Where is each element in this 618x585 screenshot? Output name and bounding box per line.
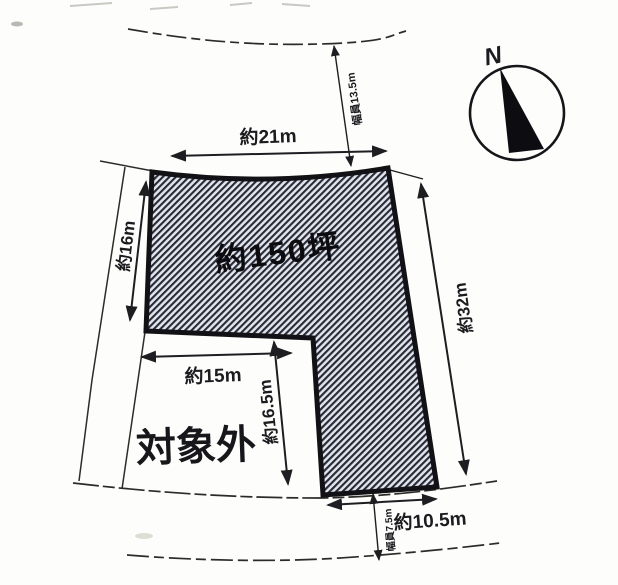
scanned-plot-diagram: 約150坪 対象外 約21m 約16m 約32m 約15m 約16.5m 約10… [0,0,618,585]
compass: N [470,41,564,160]
dim-top-width: 約21m [172,124,386,156]
diagram-canvas: 約150坪 対象外 約21m 約16m 約32m 約15m 約16.5m 約10… [0,0,618,585]
dim-left-side: 約16m [113,182,146,320]
dim-inner-width-line [142,353,291,357]
scan-smudge [70,3,112,6]
dim-inner-height-label: 約16.5m [255,379,282,446]
compass-north-label: N [482,41,505,71]
scan-smudge [282,4,310,6]
bottom-road-edge-lower [127,543,500,560]
scan-speck [135,533,153,539]
dim-top-road-width: 幅員13.5m [334,46,365,166]
right-corner-extension-line [390,170,423,179]
dim-bottom-width-line [328,499,436,505]
top-road-edge-lower [100,161,153,171]
dim-top-road-width-label: 幅員13.5m [343,71,364,126]
scan-smudge [230,3,252,5]
dim-bottom-width-label: 約10.5m [393,506,467,534]
dim-bottom-road-width: 幅員7.5m [373,494,398,560]
top-road-edge-upper [128,29,406,44]
dim-inner-height: 約16.5m [255,342,288,484]
dim-top-road-width-line [334,46,351,166]
dim-right-side-label: 約32m [450,281,477,334]
dim-inner-width-label: 約15m [184,363,242,388]
compass-needle-icon [500,68,544,153]
dim-top-width-label: 約21m [239,124,297,149]
left-outer-boundary-line [79,167,125,481]
dim-left-side-label: 約16m [113,219,139,272]
excluded-area-label: 対象外 [135,423,256,471]
dim-bottom-road-width-line [373,494,379,560]
scan-smudge [150,7,178,9]
dim-top-width-line [172,151,386,156]
scan-speck [11,22,23,27]
dim-bottom-width: 約10.5m [328,499,467,535]
